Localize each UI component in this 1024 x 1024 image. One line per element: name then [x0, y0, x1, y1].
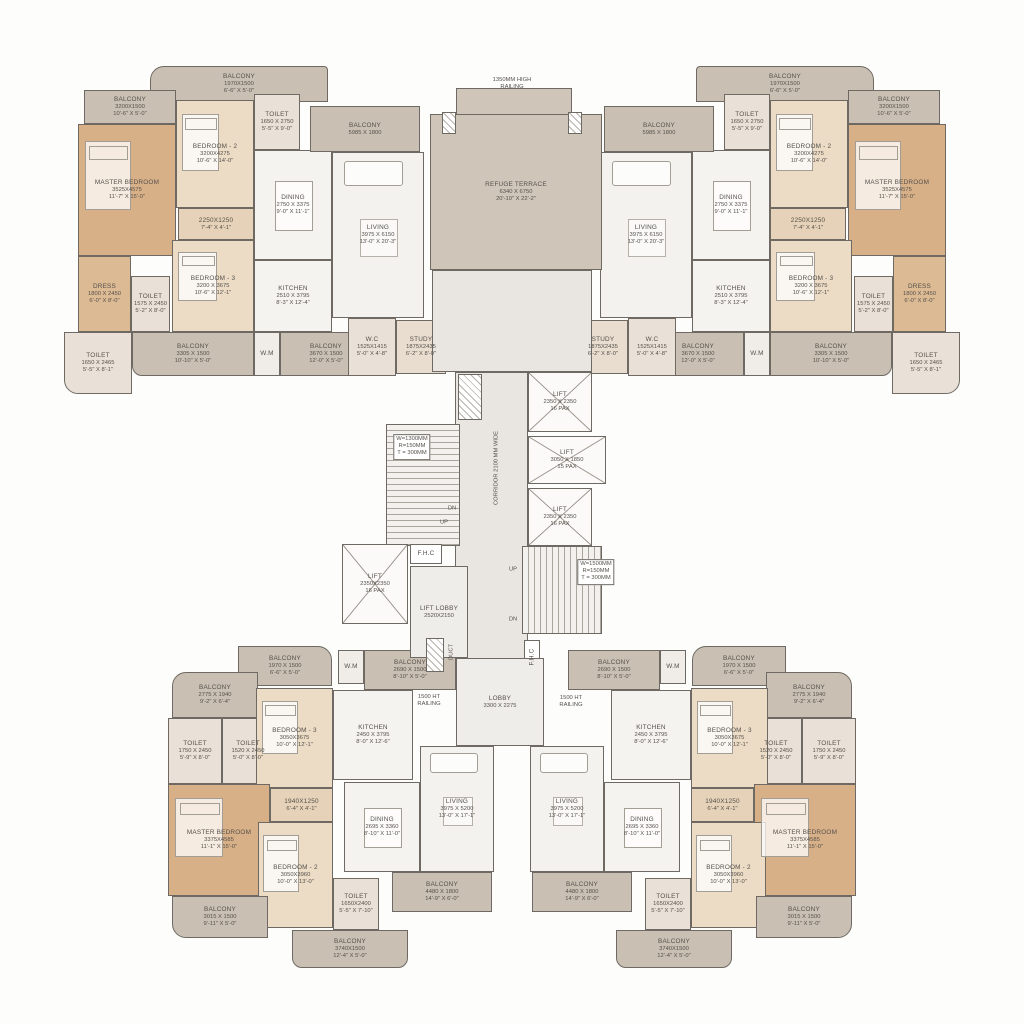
room-name: 2250X1250	[199, 217, 234, 225]
room-dimension: 6'-6" X 5'-0"	[770, 88, 800, 95]
room-dimension: 6'-6" X 5'-0"	[724, 670, 754, 677]
room-dimension: 1520 X 2450	[232, 748, 265, 755]
room-balcony-master-unit-top-left: BALCONY3200X150010'-6" X 5'-0"	[84, 90, 176, 124]
room-dimension: 2450 X 3795	[357, 732, 390, 739]
room-label: BALCONY3670 X 150012'-0" X 5'-0"	[681, 343, 714, 365]
room-label: 2250X12507'-4" X 4'-1"	[791, 217, 826, 232]
room-shaft-core	[458, 374, 482, 420]
note-stair2-up: UP	[509, 566, 517, 573]
room-bedroom-3-unit-top-left: BEDROOM - 33200 X 367510'-6" X 12'-1"	[172, 240, 254, 332]
room-label: KITCHEN2510 X 37958'-3" X 12'-4"	[714, 285, 747, 307]
room-name: W.M	[260, 350, 273, 358]
room-label: W.M	[344, 663, 357, 671]
room-dimension: 5'-5" X 7'-10"	[339, 908, 372, 915]
room-label: LIVING3975 X 615013'-0" X 20'-3"	[360, 224, 397, 246]
room-balcony-master-unit-bottom-right: BALCONY3015 X 15009'-11" X 5'-0"	[756, 896, 852, 938]
room-balcony-bed3-unit-top-right: BALCONY3305 X 150010'-10" X 5'-0"	[770, 332, 892, 376]
room-label: BALCONY3015 X 15009'-11" X 5'-0"	[788, 906, 821, 928]
note-stair1-dn: DN	[448, 505, 456, 512]
room-kitchen-unit-top-left: KITCHEN2510 X 37958'-3" X 12'-4"	[254, 260, 332, 332]
room-name: BALCONY	[310, 343, 342, 351]
room-wm-unit-top-left: W.M	[254, 332, 280, 376]
room-label: BALCONY3015 X 15009'-11" X 5'-0"	[204, 906, 237, 928]
room-dimension: 3525X4575	[882, 187, 912, 194]
room-living-unit-top-left: LIVING3975 X 615013'-0" X 20'-3"	[332, 152, 424, 318]
room-dimension: 12'-0" X 5'-0"	[681, 358, 714, 365]
room-label: LIVING3975 X 520013'-0" X 17'-1"	[439, 798, 476, 820]
room-name: BALCONY	[788, 906, 820, 914]
room-dining-unit-bottom-right: DINING2695 X 33608'-10" X 11'-0"	[604, 782, 680, 872]
room-refuge-terrace-core: REFUGE TERRACE6340 X 675020'-10" X 22'-2…	[430, 114, 602, 270]
room-name: 2250X1250	[791, 217, 826, 225]
room-dimension: 1750 X 2450	[813, 748, 846, 755]
room-kitchen-unit-bottom-left: KITCHEN2450 X 37958'-0" X 12'-6"	[333, 690, 413, 780]
room-name: TOILET	[817, 740, 840, 748]
room-lobby-core: LOBBY3300 X 2275	[456, 658, 544, 746]
room-dining-unit-top-left: DINING2750 X 33759'-0" X 11'-1"	[254, 150, 332, 260]
room-label: LIFT LOBBY2520X2150	[420, 605, 458, 620]
room-dimension: 1525X1415	[637, 344, 667, 351]
room-dimension: 3200 X 3675	[795, 283, 828, 290]
room-dimension: 1575 X 2450	[857, 301, 890, 308]
room-name: MASTER BEDROOM	[95, 179, 159, 187]
room-name: TOILET	[344, 893, 367, 901]
room-dimension: 6'-6" X 5'-0"	[224, 88, 254, 95]
note-duct-label: DUCT	[448, 644, 455, 660]
room-dimension: 2690 X 1500	[394, 667, 427, 674]
room-name: W.M	[344, 663, 357, 671]
note-railing-left: 1500 HT RAILING	[417, 694, 440, 708]
room-dimension: 1525X1415	[357, 344, 387, 351]
room-name: BALCONY	[793, 684, 825, 692]
room-label: LIFT2350X235016 PAX	[360, 573, 390, 595]
room-dimension: 3050X3960	[281, 872, 311, 879]
room-corridor-upper-core	[432, 270, 592, 372]
room-dimension: 6340 X 6750	[500, 189, 533, 196]
room-name: BALCONY	[177, 343, 209, 351]
room-name: LIFT	[368, 573, 382, 581]
room-dimension: 1970 X 1500	[269, 663, 302, 670]
room-name: BEDROOM - 2	[193, 143, 237, 151]
room-name: 1940X1250	[284, 798, 319, 806]
room-dimension: 5'-5" X 9'-0"	[732, 126, 762, 133]
room-label: TOILET1520 X 24505'-0" X 8'-0"	[232, 740, 265, 762]
room-label: W.M	[750, 350, 763, 358]
room-dimension: 2750 X 3375	[277, 202, 310, 209]
room-dimension: 11'-7" X 15'-0"	[109, 194, 145, 201]
room-label: 1940X12506'-4" X 4'-1"	[705, 798, 740, 813]
room-dimension: 10'-10" X 5'-0"	[813, 358, 850, 365]
room-dimension: 3975 X 6150	[362, 232, 395, 239]
room-label: BALCONY5985 X 1800	[643, 122, 676, 137]
room-dimension: 2690 X 1500	[598, 667, 631, 674]
room-wm-unit-bottom-right: W.M	[660, 650, 686, 684]
room-duct-lobby-core	[426, 638, 444, 672]
room-dimension: 5'-5" X 9'-0"	[262, 126, 292, 133]
room-dimension: 5'-2" X 8'-0"	[858, 308, 888, 315]
room-dimension: 10'-6" X 5'-0"	[877, 111, 910, 118]
note-stair2-dn: DN	[509, 616, 517, 623]
room-name: STUDY	[410, 336, 433, 344]
room-name: LIVING	[446, 798, 468, 806]
room-dimension: 5'-5" X 8'-1"	[911, 367, 941, 374]
room-label: BALCONY3200X150010'-6" X 5'-0"	[877, 96, 910, 118]
room-dimension: 8'-10" X 11'-0"	[624, 831, 660, 838]
room-dimension: 9'-0" X 11'-1"	[277, 209, 310, 216]
room-name: BALCONY	[349, 122, 381, 130]
room-dimension: 3200X4275	[200, 151, 230, 158]
room-dimension: 1650X2400	[341, 901, 371, 908]
room-balcony-bed3-unit-top-left: BALCONY3305 X 150010'-10" X 5'-0"	[132, 332, 254, 376]
room-dimension: 8'-0" X 12'-6"	[356, 739, 389, 746]
sofa-icon	[612, 161, 672, 186]
room-dimension: 1575 X 2450	[134, 301, 167, 308]
room-label: STUDY1875X24356'-2" X 8'-0"	[588, 336, 618, 358]
room-label: MASTER BEDROOM3375X458511'-1" X 15'-0"	[773, 829, 837, 851]
room-duct-terrace-right-core	[568, 112, 582, 134]
room-name: LIFT	[560, 449, 574, 457]
room-label: STUDY1875X24356'-2" X 8'-0"	[406, 336, 436, 358]
room-dimension: 3200X4275	[794, 151, 824, 158]
room-label: KITCHEN2450 X 37958'-0" X 12'-6"	[634, 724, 667, 746]
room-dimension: 5'-0" X 8'-0"	[761, 755, 791, 762]
room-dimension: 6'-2" X 8'-0"	[588, 351, 618, 358]
room-dimension: 10'-6" X 5'-0"	[113, 111, 146, 118]
room-name: BALCONY	[199, 684, 231, 692]
room-dimension: 13'-0" X 20'-3"	[628, 239, 665, 246]
room-name: W.M	[666, 663, 679, 671]
room-name: BALCONY	[658, 938, 690, 946]
sofa-icon	[430, 753, 478, 772]
room-name: W.C	[366, 336, 379, 344]
room-name: F.H.C	[528, 649, 536, 666]
room-dimension: 10'-6" X 12'-1"	[195, 290, 232, 297]
room-dimension: 14'-9" X 6'-0"	[565, 896, 598, 903]
room-label: BALCONY5985 X 1800	[349, 122, 382, 137]
room-label: BALCONY3740X150012'-4" X 5'-0"	[657, 938, 690, 960]
room-dimension: 4480 X 1800	[426, 889, 459, 896]
room-balcony-side-unit-bottom-right: BALCONY2775 X 19409'-2" X 6'-4"	[766, 672, 852, 718]
room-name: W.C	[646, 336, 659, 344]
room-label: BEDROOM - 33050X367510'-0" X 12'-1"	[707, 727, 751, 749]
note-railing-top: 1350MM HIGH RAILING	[493, 77, 532, 91]
room-dimension: 3305 X 1500	[815, 351, 848, 358]
room-balcony-bed2-unit-bottom-right: BALCONY3740X150012'-4" X 5'-0"	[616, 930, 732, 968]
room-balcony-bed2-unit-bottom-left: BALCONY3740X150012'-4" X 5'-0"	[292, 930, 408, 968]
room-lift-4-core: LIFT2350X235016 PAX	[342, 544, 408, 624]
room-lift-2-core: LIFT3050 X 185015 PAX	[528, 436, 606, 484]
room-name: TOILET	[86, 352, 109, 360]
room-label: BALCONY4480 X 180014'-9" X 6'-0"	[425, 881, 458, 903]
room-dimension: 3050 X 1850	[551, 457, 584, 464]
room-dimension: 2695 X 3360	[366, 824, 399, 831]
room-label: BEDROOM - 23050X396010'-0" X 13'-0"	[706, 864, 750, 886]
room-terrace-notch-core	[456, 88, 572, 116]
room-label: 1940X12506'-4" X 4'-1"	[284, 798, 319, 813]
room-dimension: 11'-7" X 15'-0"	[879, 194, 915, 201]
room-dimension: 9'-2" X 6'-4"	[200, 699, 230, 706]
room-name: BALCONY	[334, 938, 366, 946]
room-label: MASTER BEDROOM3525X457511'-7" X 15'-0"	[865, 179, 929, 201]
room-name: BEDROOM - 2	[273, 864, 317, 872]
room-label: DRESS1800 X 24506'-0" X 8'-0"	[88, 283, 121, 305]
room-name: STUDY	[592, 336, 615, 344]
room-name: BALCONY	[426, 881, 458, 889]
room-dimension: 12'-4" X 5'-0"	[657, 953, 690, 960]
room-label: TOILET1650X24005'-5" X 7'-10"	[651, 893, 684, 915]
room-name: BEDROOM - 3	[272, 727, 316, 735]
room-dimension: 1970 X 1500	[723, 663, 756, 670]
room-name: BEDROOM - 3	[191, 275, 235, 283]
room-label: MASTER BEDROOM3525X457511'-7" X 15'-0"	[95, 179, 159, 201]
room-dimension: 16 PAX	[550, 521, 569, 528]
note-stair2-spec: W=1500MM R=150MM T = 300MM	[577, 559, 614, 585]
room-dimension: 9'-2" X 6'-4"	[794, 699, 824, 706]
room-passage-unit-top-left: 2250X12507'-4" X 4'-1"	[178, 208, 254, 240]
room-dimension: 3200 X 3675	[197, 283, 230, 290]
room-name: 1940X1250	[705, 798, 740, 806]
room-dimension: 3975 X 6150	[630, 232, 663, 239]
room-passage-unit-bottom-right: 1940X12506'-4" X 4'-1"	[691, 788, 754, 822]
room-label: KITCHEN2450 X 37958'-0" X 12'-6"	[356, 724, 389, 746]
room-dimension: 6'-0" X 8'-0"	[89, 298, 119, 305]
room-name: BALCONY	[682, 343, 714, 351]
room-label: BALCONY3670 X 150012'-0" X 5'-0"	[309, 343, 342, 365]
room-toilet-bed2-unit-top-right: TOILET1650 X 27505'-5" X 9'-0"	[724, 94, 770, 150]
room-label: DINING2750 X 33759'-0" X 11'-1"	[277, 194, 310, 216]
room-bedroom-3-unit-bottom-left: BEDROOM - 33050X367510'-0" X 12'-1"	[256, 688, 333, 788]
room-dimension: 2350X2350	[360, 581, 390, 588]
room-dimension: 1650X2400	[653, 901, 683, 908]
room-dimension: 3300 X 2275	[484, 703, 517, 710]
room-dimension: 9'-0" X 11'-1"	[715, 209, 748, 216]
room-dining-unit-bottom-left: DINING2695 X 33608'-10" X 11'-0"	[344, 782, 420, 872]
room-toilet-3-unit-bottom-left: TOILET1650X24005'-5" X 7'-10"	[333, 878, 379, 930]
room-dimension: 1650 X 2465	[82, 360, 115, 367]
room-balcony-living-unit-top-right: BALCONY5985 X 1800	[604, 106, 714, 152]
room-name: REFUGE TERRACE	[485, 181, 547, 189]
room-lift-1-core: LIFT2350 X 235016 PAX	[528, 372, 592, 432]
room-name: TOILET	[265, 111, 288, 119]
room-dimension: 3200X1500	[115, 104, 145, 111]
room-name: LIVING	[367, 224, 389, 232]
room-dimension: 10'-0" X 13'-0"	[710, 879, 747, 886]
room-kitchen-unit-bottom-right: KITCHEN2450 X 37958'-0" X 12'-6"	[611, 690, 691, 780]
room-name: TOILET	[139, 293, 162, 301]
room-bedroom-2-unit-top-right: BEDROOM - 23200X427510'-6" X 14'-0"	[770, 100, 848, 208]
room-label: DINING2750 X 33759'-0" X 11'-1"	[715, 194, 748, 216]
room-dimension: 5'-0" X 4'-8"	[637, 351, 667, 358]
room-dimension: 3050X3675	[280, 735, 310, 742]
room-name: LIFT	[553, 506, 567, 514]
room-label: W.C1525X14155'-0" X 4'-8"	[637, 336, 667, 358]
room-label: BEDROOM - 33200 X 367510'-6" X 12'-1"	[191, 275, 235, 297]
room-name: LOBBY	[489, 695, 511, 703]
room-dimension: 8'-3" X 12'-4"	[714, 300, 747, 307]
room-dimension: 3200X1500	[879, 104, 909, 111]
room-dress-unit-top-right: DRESS1800 X 24506'-0" X 8'-0"	[893, 256, 946, 332]
note-stair1-spec: W=1300MM R=150MM T = 300MM	[393, 434, 430, 460]
room-label: LIFT2350 X 235016 PAX	[544, 506, 577, 528]
room-name: F.H.C	[418, 550, 435, 558]
room-name: TOILET	[914, 352, 937, 360]
room-dimension: 11'-1" X 15'-0"	[201, 844, 237, 851]
room-name: TOILET	[862, 293, 885, 301]
room-dining-unit-top-right: DINING2750 X 33759'-0" X 11'-1"	[692, 150, 770, 260]
room-dimension: 3525X4575	[112, 187, 142, 194]
room-dimension: 3975 X 5200	[551, 806, 584, 813]
room-name: BALCONY	[769, 73, 801, 81]
room-master-bedroom-unit-top-right: MASTER BEDROOM3525X457511'-7" X 15'-0"	[848, 124, 946, 256]
room-toilet-master-unit-top-right: TOILET1575 X 24505'-2" X 8'-0"	[854, 276, 893, 332]
room-dimension: 2775 X 1940	[793, 692, 826, 699]
room-label: BALCONY2690 X 15008'-10" X 5'-0"	[597, 659, 630, 681]
room-fhc-1-core: F.H.C	[410, 544, 442, 564]
room-label: LIFT3050 X 185015 PAX	[551, 449, 584, 471]
room-dimension: 10'-6" X 12'-1"	[793, 290, 830, 297]
room-name: BEDROOM - 2	[706, 864, 750, 872]
room-dimension: 12'-4" X 5'-0"	[333, 953, 366, 960]
room-label: KITCHEN2510 X 37958'-3" X 12'-4"	[276, 285, 309, 307]
room-label: BALCONY2775 X 19409'-2" X 6'-4"	[199, 684, 232, 706]
room-dimension: 8'-3" X 12'-4"	[276, 300, 309, 307]
room-name: BALCONY	[598, 659, 630, 667]
room-dimension: 1650 X 2465	[910, 360, 943, 367]
room-label: W.M	[260, 350, 273, 358]
room-dimension: 10'-6" X 14'-0"	[197, 158, 234, 165]
room-dimension: 1800 X 2450	[903, 291, 936, 298]
room-name: BALCONY	[643, 122, 675, 130]
room-label: BALCONY1970X15006'-6" X 5'-0"	[769, 73, 801, 95]
room-label: DRESS1800 X 24506'-0" X 8'-0"	[903, 283, 936, 305]
room-label: BALCONY2690 X 15008'-10" X 5'-0"	[393, 659, 426, 681]
room-label: TOILET1750 X 24505'-9" X 8'-0"	[813, 740, 846, 762]
room-label: DINING2695 X 33608'-10" X 11'-0"	[624, 816, 660, 838]
note-corridor-label: CORRIDOR 2100 MM WIDE	[493, 431, 500, 505]
room-balcony-side-unit-bottom-left: BALCONY2775 X 19409'-2" X 6'-4"	[172, 672, 258, 718]
room-name: DINING	[630, 816, 654, 824]
room-name: TOILET	[236, 740, 259, 748]
room-dimension: 10'-0" X 12'-1"	[276, 742, 313, 749]
room-label: F.H.C	[528, 649, 536, 666]
room-name: BEDROOM - 2	[787, 143, 831, 151]
room-dimension: 7'-4" X 4'-1"	[201, 225, 231, 232]
room-dimension: 2510 X 3795	[715, 293, 748, 300]
room-name: LIVING	[556, 798, 578, 806]
room-wc-unit-top-right: W.C1525X14155'-0" X 4'-8"	[628, 318, 676, 376]
room-dimension: 3975 X 5200	[441, 806, 474, 813]
room-dimension: 3740X1500	[659, 946, 689, 953]
room-name: BEDROOM - 3	[789, 275, 833, 283]
room-bedroom-3-unit-bottom-right: BEDROOM - 33050X367510'-0" X 12'-1"	[691, 688, 768, 788]
room-dimension: 6'-4" X 4'-1"	[707, 806, 737, 813]
room-label: TOILET1650 X 27505'-5" X 9'-0"	[731, 111, 764, 133]
room-dimension: 1800 X 2450	[88, 291, 121, 298]
room-master-bedroom-unit-bottom-right: MASTER BEDROOM3375X458511'-1" X 15'-0"	[754, 784, 856, 896]
room-name: TOILET	[656, 893, 679, 901]
room-label: TOILET1575 X 24505'-2" X 8'-0"	[857, 293, 890, 315]
room-passage-unit-top-right: 2250X12507'-4" X 4'-1"	[770, 208, 846, 240]
room-label: DINING2695 X 33608'-10" X 11'-0"	[364, 816, 400, 838]
room-dimension: 3050X3960	[714, 872, 744, 879]
room-name: DRESS	[93, 283, 116, 291]
room-dimension: 5'-0" X 4'-8"	[357, 351, 387, 358]
room-label: BALCONY3740X150012'-4" X 5'-0"	[333, 938, 366, 960]
room-passage-unit-bottom-left: 1940X12506'-4" X 4'-1"	[270, 788, 333, 822]
room-bedroom-2-unit-bottom-left: BEDROOM - 23050X396010'-0" X 13'-0"	[258, 822, 333, 928]
room-label: MASTER BEDROOM3375X458511'-1" X 15'-0"	[187, 829, 251, 851]
room-label: BALCONY1970X15006'-6" X 5'-0"	[223, 73, 255, 95]
room-balcony-living-unit-bottom-right: BALCONY4480 X 180014'-9" X 6'-0"	[532, 872, 632, 912]
note-stair1-up: UP	[440, 519, 448, 526]
room-living-unit-top-right: LIVING3975 X 615013'-0" X 20'-3"	[600, 152, 692, 318]
room-name: BALCONY	[204, 906, 236, 914]
room-balcony-kitchen-unit-bottom-right: BALCONY2690 X 15008'-10" X 5'-0"	[568, 650, 660, 690]
room-label: F.H.C	[418, 550, 435, 558]
room-bedroom-3-unit-top-right: BEDROOM - 33200 X 367510'-6" X 12'-1"	[770, 240, 852, 332]
room-toilet-3-unit-bottom-right: TOILET1650X24005'-5" X 7'-10"	[645, 878, 691, 930]
room-dimension: 10'-6" X 14'-0"	[791, 158, 828, 165]
room-label: TOILET1650X24005'-5" X 7'-10"	[339, 893, 372, 915]
room-dimension: 14'-9" X 6'-0"	[425, 896, 458, 903]
room-dimension: 11'-1" X 15'-0"	[787, 844, 823, 851]
room-name: LIVING	[635, 224, 657, 232]
room-dimension: 3670 X 1500	[682, 351, 715, 358]
room-toilet-bed2-unit-top-left: TOILET1650 X 27505'-5" X 9'-0"	[254, 94, 300, 150]
room-name: DRESS	[908, 283, 931, 291]
room-dimension: 1875X2435	[406, 344, 436, 351]
room-name: KITCHEN	[716, 285, 745, 293]
room-label: W.C1525X14155'-0" X 4'-8"	[357, 336, 387, 358]
room-label: TOILET1520 X 24505'-0" X 8'-0"	[760, 740, 793, 762]
room-dimension: 8'-10" X 11'-0"	[364, 831, 400, 838]
room-dimension: 1970X1500	[770, 81, 800, 88]
room-dimension: 5'-2" X 8'-0"	[135, 308, 165, 315]
room-dimension: 5'-5" X 7'-10"	[651, 908, 684, 915]
room-dimension: 1520 X 2450	[760, 748, 793, 755]
room-dress-unit-top-left: DRESS1800 X 24506'-0" X 8'-0"	[78, 256, 131, 332]
room-label: BALCONY3200X150010'-6" X 5'-0"	[113, 96, 146, 118]
room-name: MASTER BEDROOM	[773, 829, 837, 837]
room-dimension: 5'-5" X 8'-1"	[83, 367, 113, 374]
sofa-icon	[540, 753, 588, 772]
room-dimension: 2750 X 3375	[715, 202, 748, 209]
room-dimension: 2510 X 3795	[277, 293, 310, 300]
room-label: BALCONY3305 X 150010'-10" X 5'-0"	[813, 343, 850, 365]
room-dimension: 6'-4" X 4'-1"	[286, 806, 316, 813]
room-duct-terrace-left-core	[442, 112, 456, 134]
room-dimension: 2450 X 3795	[635, 732, 668, 739]
room-dimension: 10'-10" X 5'-0"	[175, 358, 212, 365]
room-dimension: 9'-11" X 5'-0"	[788, 921, 821, 928]
floor-plan-canvas: BALCONY1970X15006'-6" X 5'-0"BALCONY3200…	[0, 0, 1024, 1024]
room-name: DINING	[370, 816, 394, 824]
room-name: BALCONY	[566, 881, 598, 889]
room-label: BEDROOM - 33050X367510'-0" X 12'-1"	[272, 727, 316, 749]
room-name: BEDROOM - 3	[707, 727, 751, 735]
room-balcony-living-unit-bottom-left: BALCONY4480 X 180014'-9" X 6'-0"	[392, 872, 492, 912]
sofa-icon	[344, 161, 404, 186]
room-label: TOILET1650 X 24655'-5" X 8'-1"	[82, 352, 115, 374]
room-label: BALCONY1970 X 15006'-6" X 5'-0"	[723, 655, 756, 677]
room-name: DINING	[719, 194, 743, 202]
room-dimension: 2350 X 2350	[544, 399, 577, 406]
room-balcony-master-unit-bottom-left: BALCONY3015 X 15009'-11" X 5'-0"	[172, 896, 268, 938]
room-label: TOILET1650 X 27505'-5" X 9'-0"	[261, 111, 294, 133]
room-dimension: 20'-10" X 22'-2"	[496, 196, 536, 203]
room-label: LIVING3975 X 615013'-0" X 20'-3"	[628, 224, 665, 246]
room-label: BEDROOM - 23200X427510'-6" X 14'-0"	[787, 143, 831, 165]
